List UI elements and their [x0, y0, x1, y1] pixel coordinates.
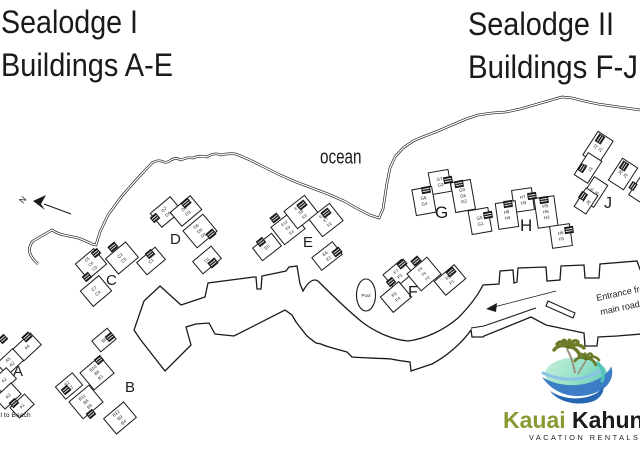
svg-text:Buildings F-J: Buildings F-J: [468, 49, 638, 85]
svg-text:C: C: [106, 272, 117, 289]
svg-text:VACATION RENTALS: VACATION RENTALS: [529, 433, 640, 442]
svg-text:Pool: Pool: [361, 293, 370, 298]
svg-text:H: H: [520, 216, 532, 235]
svg-text:ocean: ocean: [320, 147, 362, 169]
svg-text:F: F: [408, 284, 418, 301]
svg-text:Trail to Beach: Trail to Beach: [0, 412, 31, 419]
svg-text:Buildings A-E: Buildings A-E: [1, 47, 173, 83]
svg-text:J: J: [604, 195, 612, 212]
svg-text:D: D: [170, 231, 181, 248]
svg-text:A: A: [13, 363, 23, 380]
svg-text:B: B: [125, 379, 135, 396]
svg-text:Kauai Kahuna: Kauai Kahuna: [503, 407, 640, 433]
svg-text:E: E: [303, 234, 313, 251]
svg-text:Sealodge II: Sealodge II: [468, 6, 614, 42]
svg-text:Sealodge I: Sealodge I: [1, 4, 138, 40]
svg-text:G: G: [435, 203, 448, 222]
